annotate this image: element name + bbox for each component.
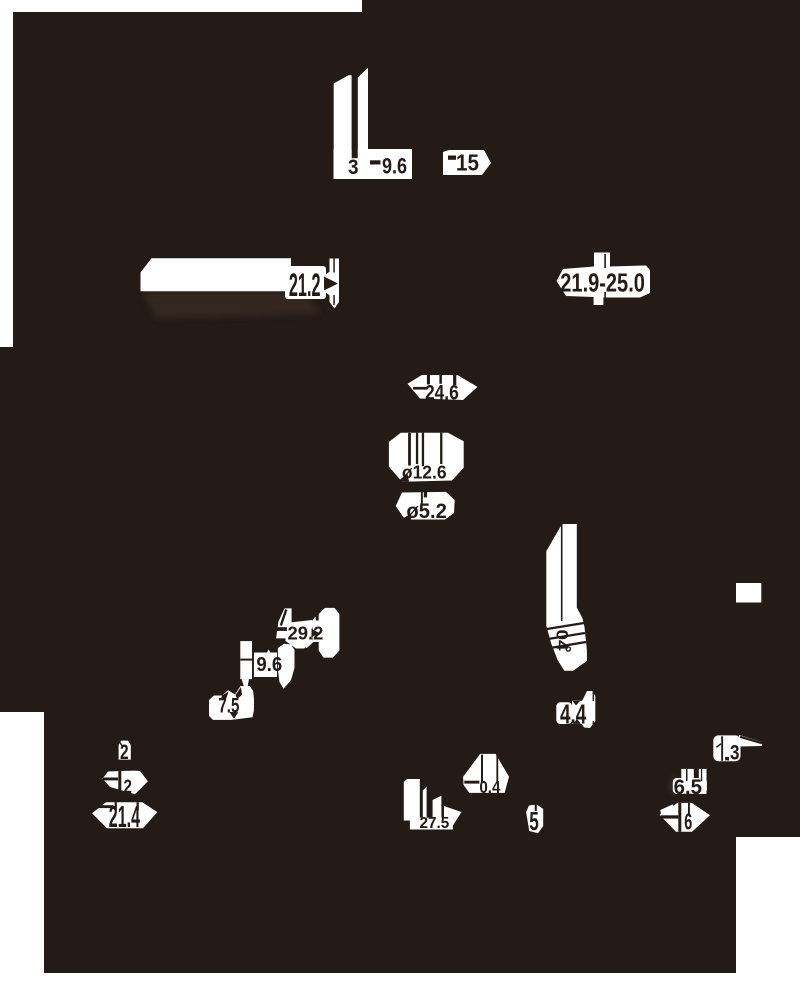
svg-text:9.6: 9.6 [382, 153, 407, 178]
svg-text:3: 3 [730, 740, 740, 765]
svg-text:21.9-25.0: 21.9-25.0 [560, 267, 645, 297]
svg-text:ø12.6: ø12.6 [402, 461, 447, 482]
svg-text:5: 5 [529, 806, 539, 836]
svg-text:3: 3 [348, 156, 359, 179]
svg-text:21.2: 21.2 [289, 267, 321, 303]
svg-text:9.6: 9.6 [256, 654, 282, 676]
svg-text:27.5: 27.5 [420, 815, 450, 832]
svg-text:0.4: 0.4 [479, 777, 500, 797]
svg-text:29.2: 29.2 [288, 624, 324, 644]
svg-text:6.5: 6.5 [674, 776, 703, 799]
svg-text:4.4: 4.4 [560, 698, 587, 729]
svg-text:6: 6 [684, 809, 692, 835]
svg-text:15: 15 [456, 149, 479, 175]
svg-text:2: 2 [120, 741, 129, 764]
svg-text:2: 2 [124, 777, 132, 798]
svg-text:21.4: 21.4 [109, 799, 141, 834]
svg-text:04: 04 [553, 630, 572, 652]
svg-text:ø5.2: ø5.2 [406, 500, 447, 523]
svg-text:24.6: 24.6 [425, 381, 459, 405]
